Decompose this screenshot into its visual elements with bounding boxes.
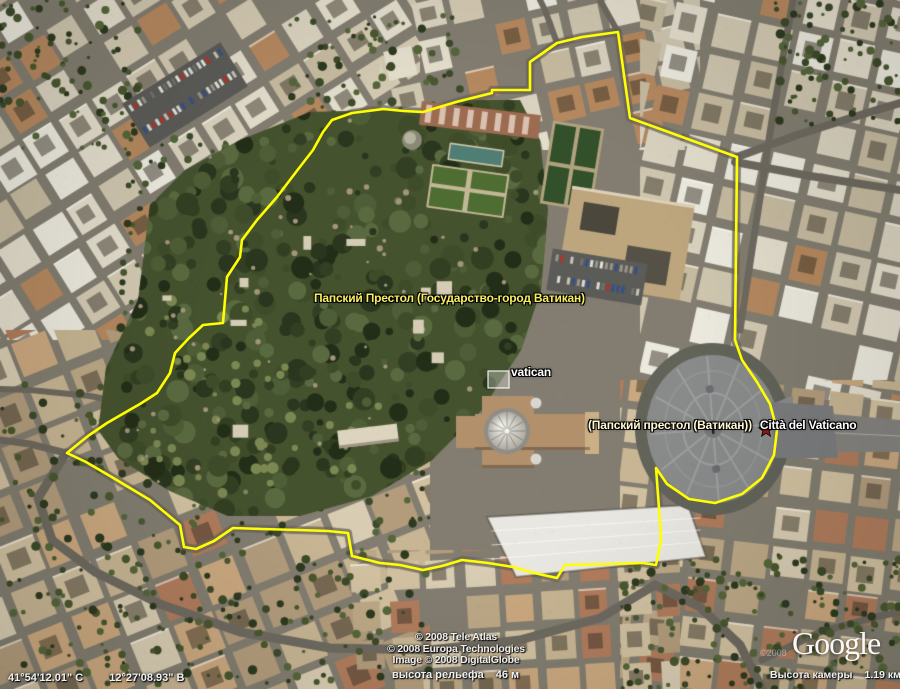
map-overlay-layer bbox=[0, 0, 900, 689]
elevation-label: высота рельефа bbox=[392, 669, 484, 681]
latitude-value: 41°54'12.01" С bbox=[8, 672, 83, 684]
placemark-label-citta: Città del Vaticano bbox=[760, 418, 856, 432]
elevation-value: 46 м bbox=[496, 669, 519, 681]
placemark-label-holy-see-short: (Папский престол (Ватикан)) bbox=[588, 418, 752, 432]
photo-overlay-frame-icon[interactable] bbox=[488, 371, 509, 388]
statusbar-coordinates: 41°54'12.01" С 12°27'08.93" В bbox=[8, 672, 184, 684]
google-logo: Google bbox=[792, 626, 880, 660]
camera-altitude-label: Высота камеры bbox=[770, 669, 853, 681]
copyright-tele-atlas: © 2008 Tele Atlas bbox=[386, 632, 526, 644]
copyright-attribution: © 2008 Tele Atlas © 2008 Europa Technolo… bbox=[386, 632, 526, 667]
placemark-label-holy-see-full[interactable]: Папский Престол (Государство-город Ватик… bbox=[314, 291, 585, 305]
placemark-label-vatican-photo[interactable]: vatican bbox=[511, 365, 551, 379]
statusbar-camera-altitude: Высота камеры 1.19 км bbox=[770, 669, 900, 681]
camera-altitude-value: 1.19 км bbox=[865, 669, 900, 681]
placemark-label-citta-group[interactable]: (Папский престол (Ватикан)) Città del Va… bbox=[588, 417, 856, 432]
longitude-value: 12°27'08.93" В bbox=[109, 672, 184, 684]
google-earth-viewport: Папский Престол (Государство-город Ватик… bbox=[0, 0, 900, 689]
copyright-digitalglobe: Image © 2008 DigitalGlobe bbox=[386, 655, 526, 667]
vatican-border[interactable] bbox=[67, 32, 777, 578]
watermark-year: ©2008 bbox=[760, 648, 787, 658]
statusbar-elevation: высота рельефа 46 м bbox=[392, 669, 519, 681]
